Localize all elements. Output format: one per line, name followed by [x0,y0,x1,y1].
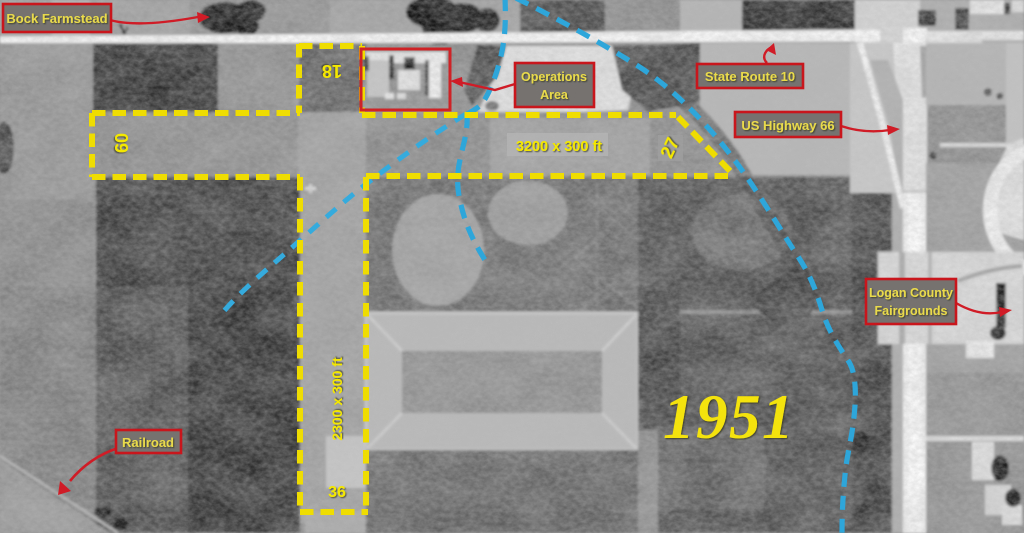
svg-text:36: 36 [328,484,346,501]
svg-text:18: 18 [322,61,342,81]
svg-text:2300 x 300 ft: 2300 x 300 ft [329,357,345,441]
svg-text:State Route 10: State Route 10 [705,69,795,84]
svg-text:09: 09 [111,133,131,153]
svg-text:3200 x 300 ft: 3200 x 300 ft [516,139,602,155]
svg-text:Operations: Operations [521,70,587,84]
svg-text:Bock Farmstead: Bock Farmstead [6,11,107,26]
svg-text:US Highway 66: US Highway 66 [741,118,834,133]
svg-text:Area: Area [540,88,569,102]
svg-text:Fairgrounds: Fairgrounds [875,304,948,318]
svg-text:Railroad: Railroad [122,435,174,450]
svg-text:Logan County: Logan County [869,286,953,300]
svg-text:1951: 1951 [663,382,795,452]
